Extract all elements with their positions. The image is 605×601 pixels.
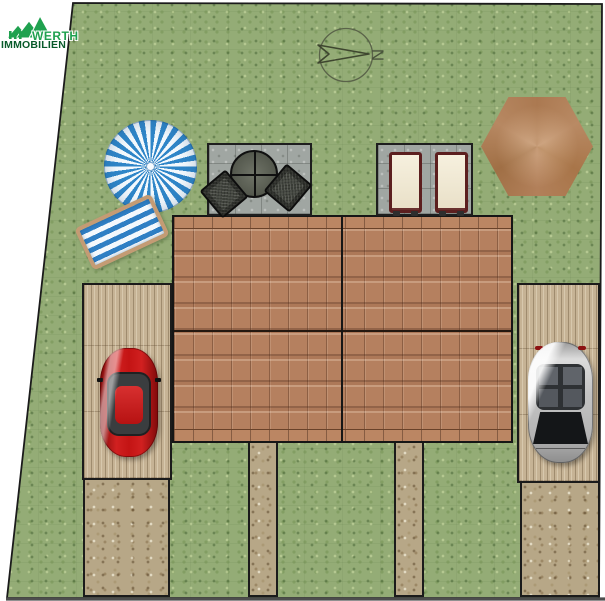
site-plan: N WERTH IMMOBILIEN <box>0 0 605 601</box>
driveway-left <box>83 478 170 597</box>
cushion-lounger-2 <box>435 152 468 213</box>
roof-unit-divider <box>341 217 343 441</box>
car-shine <box>100 348 158 457</box>
logo-text-line2: IMMOBILIEN <box>1 39 66 51</box>
compass-north-arrow-icon: N <box>312 24 396 86</box>
compass-letter: N <box>368 49 387 61</box>
red-car <box>100 348 158 457</box>
silver-car <box>528 342 593 463</box>
driveway-right <box>520 481 600 597</box>
garden-path-left <box>248 441 278 597</box>
house-roof <box>172 215 513 443</box>
car-shine <box>528 342 593 463</box>
cushion-lounger-1 <box>389 152 422 213</box>
garden-path-right <box>394 441 424 597</box>
